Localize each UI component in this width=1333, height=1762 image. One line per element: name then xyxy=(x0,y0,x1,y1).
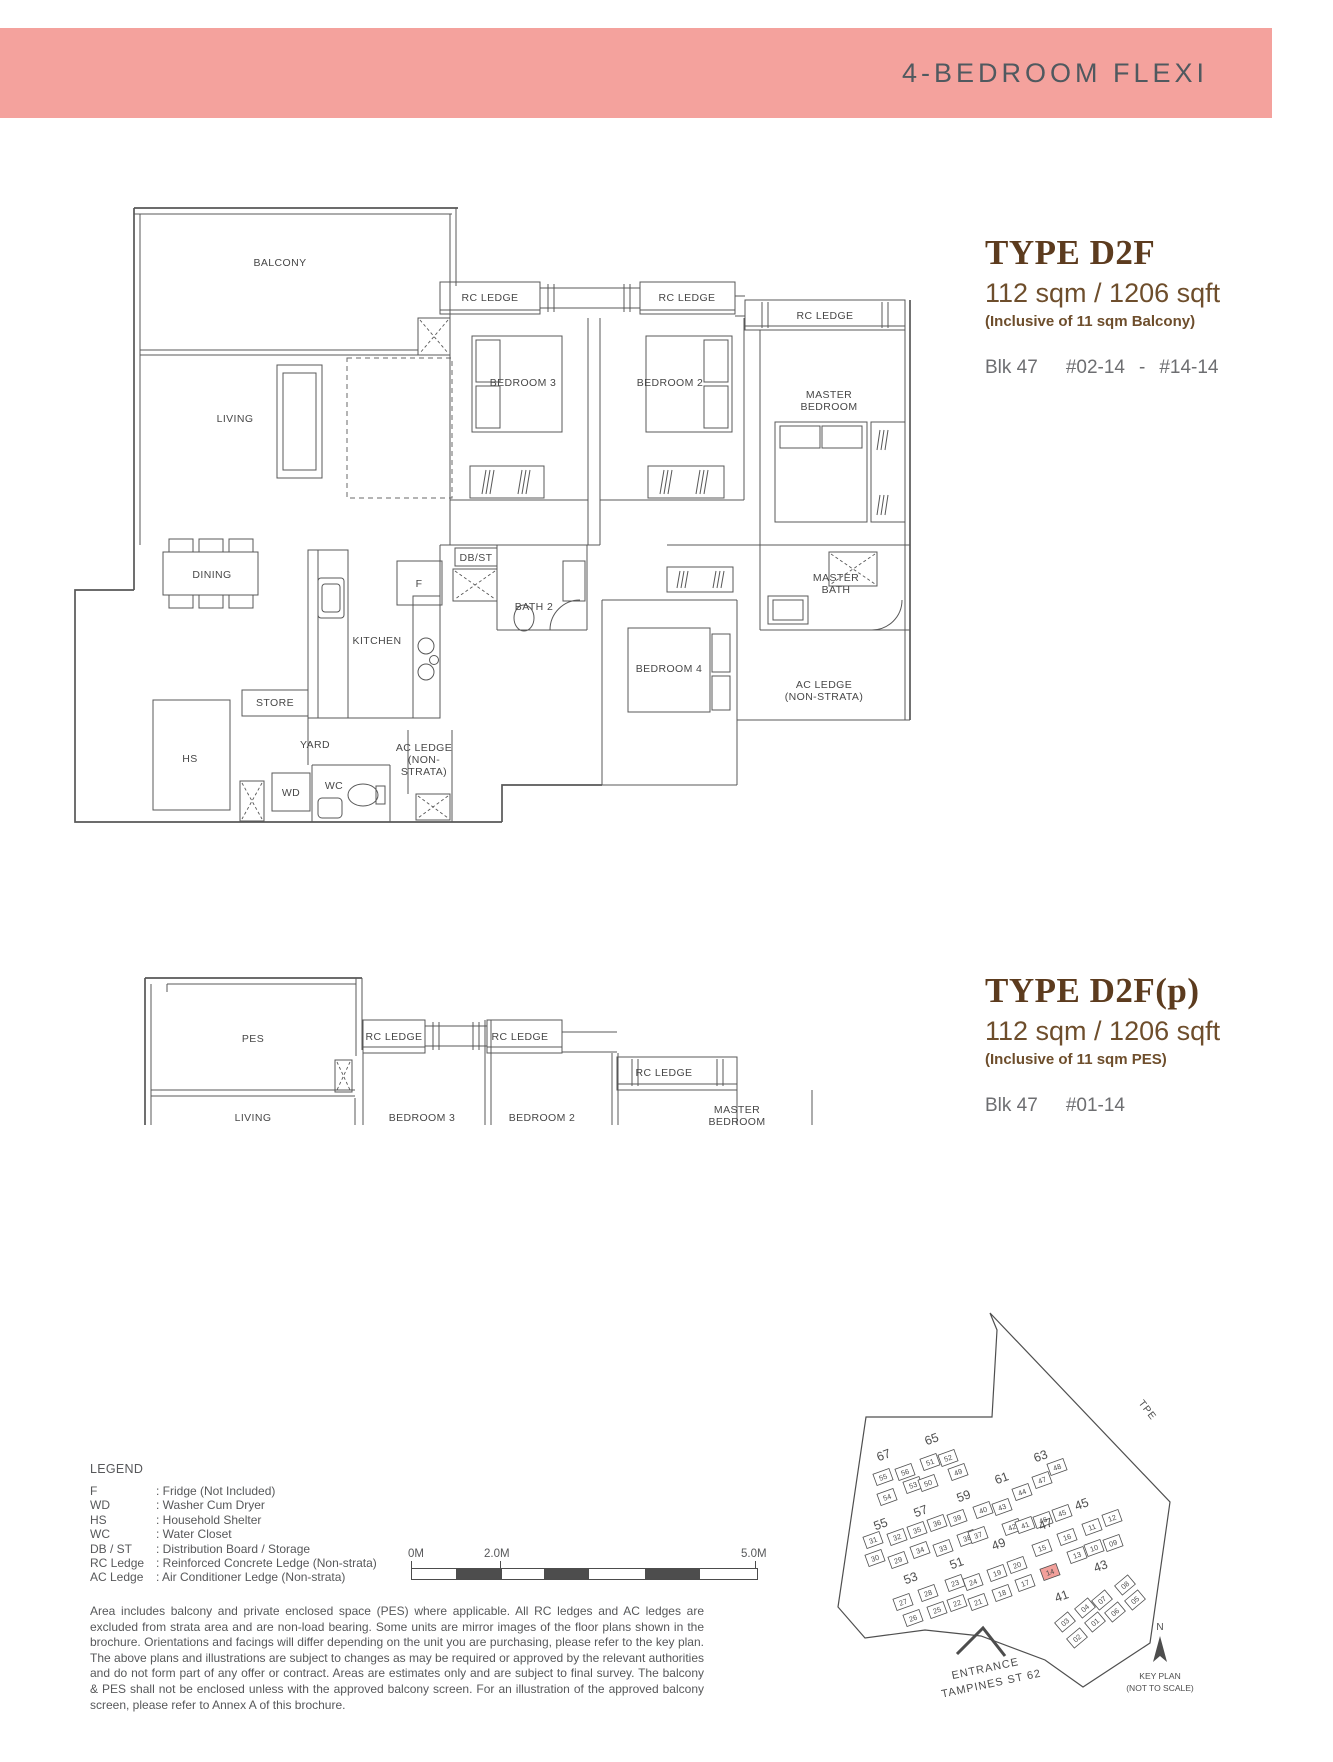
room-label: AC LEDGE(NON-STRATA) xyxy=(396,742,452,778)
room-label: PES xyxy=(242,1033,264,1045)
room-label: RC LEDGE xyxy=(492,1031,549,1043)
keyplan-block-number: 45 xyxy=(1073,1495,1091,1513)
keyplan-block-number: 51 xyxy=(948,1554,966,1572)
keyplan-unit: 34 xyxy=(910,1541,930,1558)
keyplan-unit: 48 xyxy=(1047,1458,1067,1475)
keyplan-unit: 33 xyxy=(933,1539,953,1556)
floorplan-type-d2f: BALCONYLIVINGRC LEDGERC LEDGERC LEDGEBED… xyxy=(72,200,917,830)
room-label: F xyxy=(416,578,423,590)
plan1-title-block: TYPE D2F 112 sqm / 1206 sqft (Inclusive … xyxy=(985,234,1315,379)
keyplan-unit: 13 xyxy=(1067,1546,1087,1563)
keyplan-unit: 02 xyxy=(1067,1628,1088,1648)
keyplan-unit: 32 xyxy=(887,1528,907,1545)
keyplan-unit: 54 xyxy=(877,1488,897,1505)
keyplan-unit: 17 xyxy=(1015,1574,1035,1591)
keyplan-unit: 49 xyxy=(948,1463,968,1480)
keyplan-block-number: 53 xyxy=(902,1569,920,1587)
room-label: KITCHEN xyxy=(353,635,402,647)
keyplan-unit: 03 xyxy=(1055,1612,1076,1632)
keyplan-unit: 39 xyxy=(947,1509,967,1526)
keyplan-unit: 56 xyxy=(895,1463,915,1480)
room-label: HS xyxy=(182,753,197,765)
plan2-area: 112 sqm / 1206 sqft xyxy=(985,1016,1315,1046)
keyplan-unit: 47 xyxy=(1032,1471,1052,1488)
header-band: 4-BEDROOM FLEXI xyxy=(0,28,1272,118)
keyplan-unit: 26 xyxy=(903,1609,923,1626)
scale-bar-rule xyxy=(411,1568,758,1580)
keyplan-unit: 18 xyxy=(992,1584,1012,1601)
room-label: MASTERBEDROOM xyxy=(800,389,857,413)
plan1-type: TYPE D2F xyxy=(985,234,1315,272)
legend-item: AC Ledge: Air Conditioner Ledge (Non-str… xyxy=(90,1570,377,1584)
legend-item: WD: Washer Cum Dryer xyxy=(90,1498,377,1512)
keyplan-block-number: 57 xyxy=(912,1502,930,1520)
keyplan-unit: 44 xyxy=(1012,1483,1032,1500)
legend: LEGEND F: Fridge (Not Included)WD: Washe… xyxy=(90,1462,377,1585)
page-title: 4-BEDROOM FLEXI xyxy=(902,28,1208,118)
keyplan-block-number: 67 xyxy=(875,1446,893,1464)
keyplan-caption-1: KEY PLAN xyxy=(1139,1671,1180,1681)
room-label: RC LEDGE xyxy=(366,1031,423,1043)
keyplan-unit: 20 xyxy=(1007,1556,1027,1573)
plan2-units: Blk 47#01-14 xyxy=(985,1095,1315,1117)
room-label: MASTERBEDROOM xyxy=(708,1104,765,1125)
plan2-type: TYPE D2F(p) xyxy=(985,972,1315,1010)
keyplan-unit: 52 xyxy=(938,1449,958,1466)
plan2-note: (Inclusive of 11 sqm PES) xyxy=(985,1051,1315,1069)
scale-2m: 2.0M xyxy=(484,1548,510,1560)
floorplan-type-d2f-p: PESRC LEDGERC LEDGERC LEDGELIVINGBEDROOM… xyxy=(72,860,917,1125)
legend-title: LEGEND xyxy=(90,1462,377,1476)
room-label: BEDROOM 3 xyxy=(389,1112,456,1124)
room-label: BEDROOM 2 xyxy=(509,1112,576,1124)
keyplan-unit: 06 xyxy=(1105,1602,1126,1622)
room-label: RC LEDGE xyxy=(636,1067,693,1079)
keyplan-unit: 35 xyxy=(907,1521,927,1538)
keyplan-caption-2: (NOT TO SCALE) xyxy=(1126,1683,1194,1693)
keyplan-unit: 22 xyxy=(947,1594,967,1611)
keyplan-block-number: 65 xyxy=(923,1430,941,1448)
brochure-page: 4-BEDROOM FLEXI xyxy=(0,0,1333,1762)
keyplan-unit: 36 xyxy=(927,1514,947,1531)
keyplan-unit: 31 xyxy=(863,1531,883,1548)
keyplan-unit: 21 xyxy=(968,1593,988,1610)
disclaimer-text: Area includes balcony and private enclos… xyxy=(90,1604,704,1713)
room-label: BALCONY xyxy=(254,257,307,269)
keyplan-unit: 50 xyxy=(918,1474,938,1491)
room-label: STORE xyxy=(256,697,294,709)
keyplan-unit: 28 xyxy=(918,1584,938,1601)
room-label: DB/ST xyxy=(460,552,493,564)
keyplan-unit: 24 xyxy=(963,1573,983,1590)
legend-item: WC: Water Closet xyxy=(90,1527,377,1541)
keyplan-unit: 16 xyxy=(1057,1528,1077,1545)
keyplan-unit: 29 xyxy=(888,1551,908,1568)
keyplan-block-number: 63 xyxy=(1032,1447,1050,1465)
room-label: WD xyxy=(282,787,300,799)
keyplan-unit-highlighted: 14 xyxy=(1040,1563,1060,1580)
keyplan-unit: 30 xyxy=(865,1549,885,1566)
keyplan-unit: 27 xyxy=(893,1593,913,1610)
north-arrow-icon xyxy=(1153,1636,1167,1662)
room-label: RC LEDGE xyxy=(462,292,519,304)
room-label: BEDROOM 4 xyxy=(636,663,703,675)
keyplan-unit: 19 xyxy=(987,1564,1007,1581)
keyplan-unit: 01 xyxy=(1085,1612,1106,1632)
keyplan-unit: 25 xyxy=(927,1601,947,1618)
room-label: RC LEDGE xyxy=(797,310,854,322)
room-label: YARD xyxy=(300,739,330,751)
plan1-note: (Inclusive of 11 sqm Balcony) xyxy=(985,313,1315,331)
keyplan-unit: 10 xyxy=(1084,1539,1104,1556)
keyplan-unit: 51 xyxy=(920,1453,940,1470)
keyplan-unit: 09 xyxy=(1103,1534,1123,1551)
keyplan-block-number: 43 xyxy=(1092,1557,1110,1575)
legend-item: RC Ledge: Reinforced Concrete Ledge (Non… xyxy=(90,1556,377,1570)
legend-item: F: Fridge (Not Included) xyxy=(90,1484,377,1498)
room-label: LIVING xyxy=(235,1112,272,1124)
room-label: AC LEDGE(NON-STRATA) xyxy=(785,679,864,703)
keyplan-block-number: 59 xyxy=(955,1487,973,1505)
room-label: DINING xyxy=(192,569,231,581)
keyplan-unit: 15 xyxy=(1032,1539,1052,1556)
keyplan-unit: 08 xyxy=(1115,1575,1136,1595)
road-label-tpe: TPE xyxy=(1136,1398,1158,1422)
keyplan-unit: 37 xyxy=(968,1526,988,1543)
keyplan-unit: 23 xyxy=(945,1574,965,1591)
room-label: LIVING xyxy=(217,413,254,425)
north-label: N xyxy=(1156,1622,1163,1633)
keyplan-unit: 40 xyxy=(973,1501,993,1518)
keyplan-block-number: 41 xyxy=(1053,1587,1071,1605)
legend-item: HS: Household Shelter xyxy=(90,1513,377,1527)
keyplan-block-number: 49 xyxy=(990,1535,1008,1553)
keyplan-unit: 43 xyxy=(992,1498,1012,1515)
room-label: MASTERBATH xyxy=(813,572,859,596)
keyplan-block-number: 55 xyxy=(872,1515,890,1533)
keyplan-unit: 45 xyxy=(1052,1504,1072,1521)
room-label: BEDROOM 2 xyxy=(637,377,704,389)
plan2-title-block: TYPE D2F(p) 112 sqm / 1206 sqft (Inclusi… xyxy=(985,972,1315,1117)
keyplan-unit: 11 xyxy=(1082,1518,1102,1535)
legend-item: DB / ST: Distribution Board / Storage xyxy=(90,1542,377,1556)
scale-0m: 0M xyxy=(408,1548,424,1560)
keyplan-block-number: 61 xyxy=(993,1469,1011,1487)
keyplan-unit: 05 xyxy=(1125,1590,1146,1610)
room-label: BATH 2 xyxy=(515,601,553,613)
room-label: WC xyxy=(325,780,343,792)
plan1-units: Blk 47#02-14-#14-14 xyxy=(985,357,1315,379)
plan1-area: 112 sqm / 1206 sqft xyxy=(985,278,1315,308)
scale-bar: 0M 2.0M 5.0M xyxy=(410,1548,762,1588)
keyplan-unit: 55 xyxy=(873,1468,893,1485)
keyplan-unit: 12 xyxy=(1102,1509,1122,1526)
room-label: RC LEDGE xyxy=(659,292,716,304)
room-label: BEDROOM 3 xyxy=(490,377,557,389)
key-plan: TPE ENTRANCE TAMPINES ST 62 N KEY PLAN (… xyxy=(745,1160,1195,1710)
